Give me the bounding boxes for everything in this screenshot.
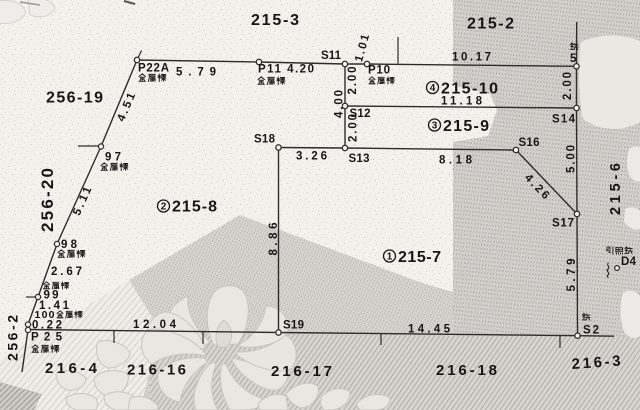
svg-text:215-3: 215-3: [251, 12, 299, 29]
svg-text:4: 4: [430, 83, 436, 94]
svg-text:D4: D4: [621, 256, 637, 268]
svg-text:2: 2: [161, 202, 167, 213]
svg-text:S14: S14: [552, 114, 576, 126]
svg-text:215-6: 215-6: [608, 163, 624, 215]
svg-text:5.79: 5.79: [566, 259, 578, 292]
svg-text:215-2: 215-2: [467, 16, 514, 33]
svg-text:S12: S12: [350, 108, 371, 120]
svg-text:0.22: 0.22: [32, 320, 62, 332]
svg-text:215-9: 215-9: [443, 118, 489, 135]
svg-text:215-8: 215-8: [172, 199, 217, 216]
svg-text:14.45: 14.45: [408, 324, 451, 336]
svg-text:2.00: 2.00: [562, 72, 574, 100]
svg-text:256-19: 256-19: [46, 90, 103, 107]
svg-text:5: 5: [570, 53, 577, 65]
svg-text:3: 3: [432, 121, 438, 132]
svg-text:S13: S13: [349, 153, 370, 165]
svg-text:10.17: 10.17: [452, 52, 491, 64]
svg-text:5.00: 5.00: [566, 145, 578, 173]
svg-text:3.26: 3.26: [296, 151, 327, 163]
svg-text:P25: P25: [31, 332, 63, 344]
svg-text:8.86: 8.86: [268, 223, 280, 256]
svg-text:S18: S18: [254, 134, 276, 146]
svg-text:215-7: 215-7: [398, 249, 441, 266]
svg-text:2.67: 2.67: [51, 266, 82, 278]
svg-text:P22A: P22A: [138, 63, 169, 75]
svg-text:4.00: 4.00: [334, 90, 346, 118]
svg-text:256-2: 256-2: [5, 315, 21, 361]
svg-text:8.18: 8.18: [439, 155, 473, 167]
svg-text:216-3: 216-3: [571, 353, 621, 373]
svg-text:S11: S11: [321, 50, 342, 62]
svg-text:216-4: 216-4: [45, 360, 98, 377]
svg-text:2.00: 2.00: [347, 67, 359, 95]
svg-text:P10: P10: [368, 65, 390, 77]
svg-text:S19: S19: [283, 320, 304, 332]
svg-text:S17: S17: [552, 218, 574, 230]
svg-text:1: 1: [387, 252, 393, 263]
svg-text:S16: S16: [519, 137, 540, 149]
